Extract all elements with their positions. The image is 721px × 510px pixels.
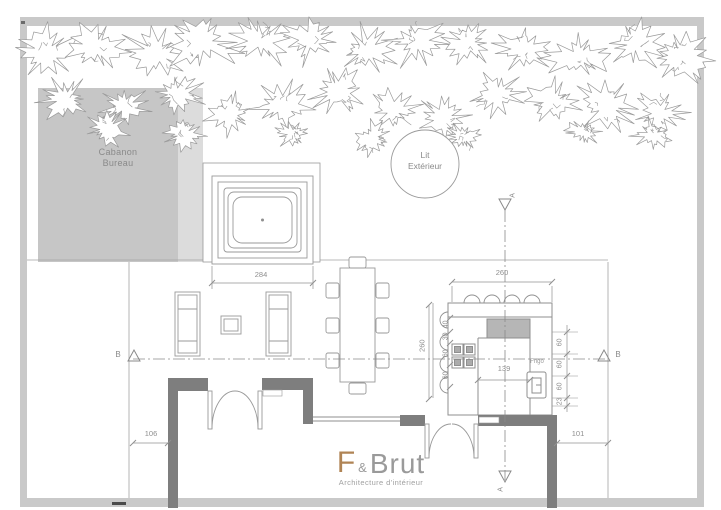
fridge [527, 372, 546, 398]
logo-ampersand: & [358, 459, 367, 477]
logo-name: Brut [370, 451, 425, 477]
logo-subtitle: Architecture d'intérieur [296, 478, 466, 487]
dim-right-setback: 101 [563, 429, 593, 438]
logo: F & Brut Architecture d'intérieur [296, 449, 466, 487]
outdoor-bed-label: LitExtérieur [390, 150, 460, 171]
dim-right-seg-1: 60 [557, 333, 566, 351]
section-b-left-label: B [112, 350, 124, 360]
dim-right-seg-4: 23 [557, 392, 566, 410]
dim-right-seg-2: 60 [557, 355, 566, 373]
dim-kitchen-inner: 139 [489, 364, 519, 373]
dim-left-seg-3: 60 [443, 344, 452, 362]
spa [212, 176, 313, 264]
dim-left-seg-2: 30 [443, 327, 452, 345]
dim-spa-width: 284 [243, 270, 279, 279]
section-b-right-label: B [612, 350, 624, 360]
dim-kitchen-depth: 260 [417, 329, 426, 363]
section-a-bottom-label: A [498, 483, 507, 495]
section-a-top-label: A [510, 189, 519, 201]
dim-left-setback: 106 [136, 429, 166, 438]
floor-plan-canvas [0, 0, 721, 510]
kitchen-hood [487, 319, 530, 338]
fridge-label: Frigo [524, 359, 550, 367]
floor-plan-page: CabanonBureau LitExtérieur 284 260 260 4… [0, 0, 721, 510]
dim-left-seg-4: 60 [443, 366, 452, 384]
furniture [175, 257, 389, 394]
cabanon-label: CabanonBureau [73, 147, 163, 170]
logo-mark: F [337, 449, 355, 477]
dim-kitchen-width: 260 [484, 268, 520, 277]
